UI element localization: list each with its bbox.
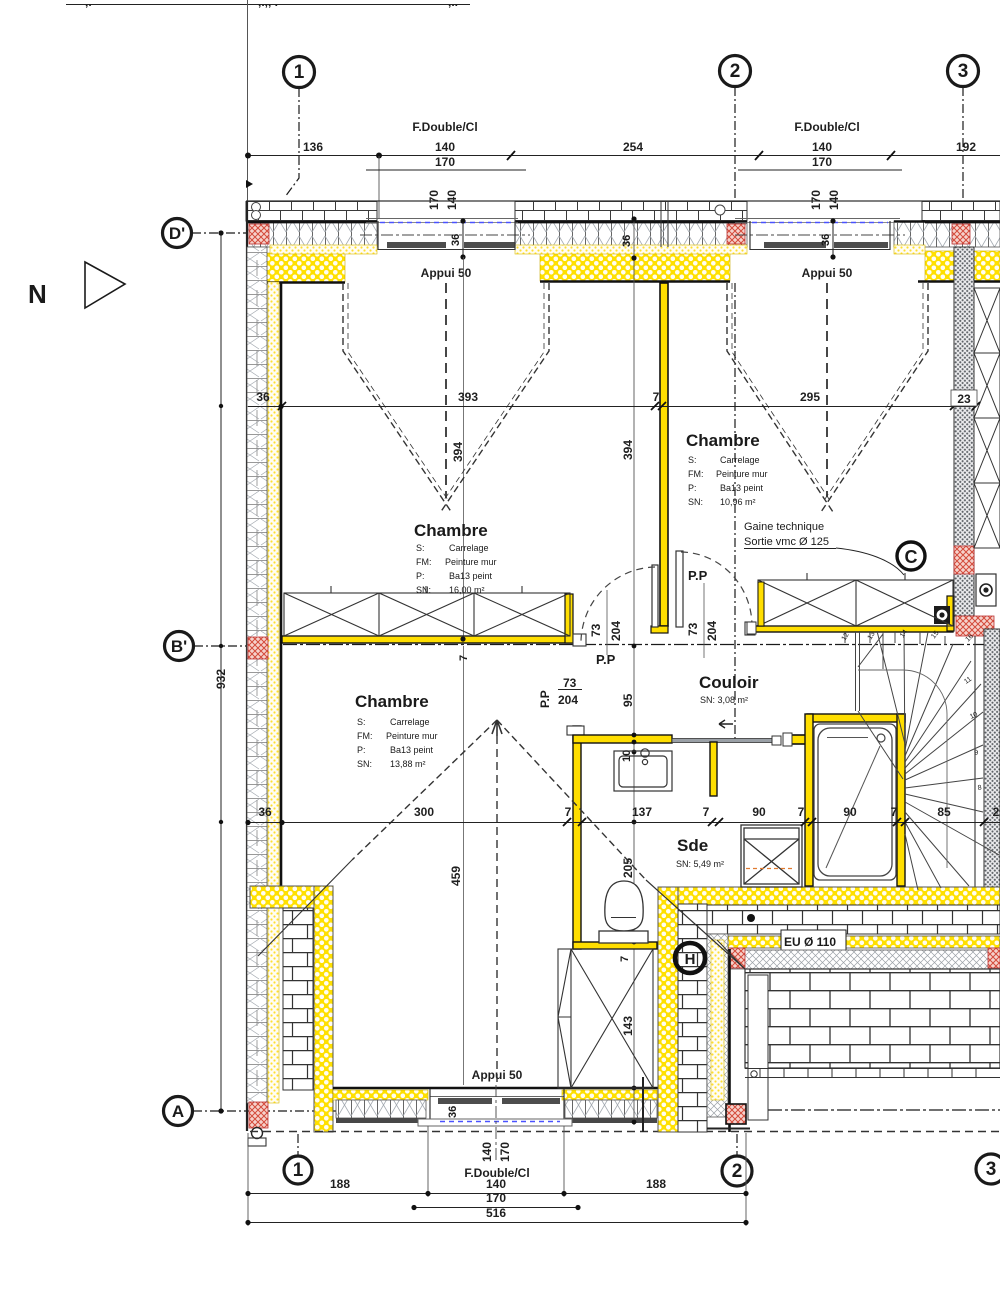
svg-text:Carrelage: Carrelage [390, 717, 430, 727]
svg-text:FM:: FM: [357, 731, 373, 741]
svg-text:170: 170 [435, 155, 455, 169]
svg-text:7: 7 [653, 390, 660, 404]
svg-text:394: 394 [621, 440, 635, 460]
svg-text:7: 7 [703, 805, 710, 819]
svg-text:,.,, .: ,.,, . [258, 0, 278, 9]
svg-text:140: 140 [445, 190, 459, 210]
svg-text:140: 140 [435, 140, 455, 154]
svg-text:204: 204 [558, 693, 578, 707]
svg-text:P.P: P.P [688, 568, 708, 583]
svg-text:170: 170 [427, 190, 441, 210]
svg-text:85: 85 [937, 805, 951, 819]
svg-text:73: 73 [563, 676, 577, 690]
svg-text:7: 7 [565, 805, 572, 819]
svg-text:N: N [28, 279, 47, 309]
svg-text:16,00 m²: 16,00 m² [449, 585, 485, 595]
svg-text:S:: S: [416, 543, 425, 553]
svg-text:F.Double/Cl: F.Double/Cl [794, 120, 859, 134]
svg-text:Couloir: Couloir [699, 673, 759, 692]
svg-text:Chambre: Chambre [355, 692, 429, 711]
svg-text:10,96 m²: 10,96 m² [720, 497, 756, 507]
svg-text:Carrelage: Carrelage [449, 543, 489, 553]
svg-text:188: 188 [646, 1177, 666, 1191]
svg-text:7: 7 [891, 805, 898, 819]
svg-text:P:: P: [416, 571, 425, 581]
svg-text:SN: 3,08 m²: SN: 3,08 m² [700, 695, 748, 705]
svg-text:P.P: P.P [538, 690, 552, 708]
svg-text:143: 143 [621, 1016, 635, 1036]
svg-text:3: 3 [986, 1159, 997, 1180]
svg-text:Ba13 peint: Ba13 peint [390, 745, 434, 755]
svg-text:2: 2 [993, 805, 1000, 819]
svg-text:140: 140 [812, 140, 832, 154]
svg-text:204: 204 [609, 621, 623, 641]
svg-text:Carrelage: Carrelage [720, 455, 760, 465]
svg-text:90: 90 [752, 805, 766, 819]
svg-text:170: 170 [809, 190, 823, 210]
svg-text:FM:: FM: [688, 469, 704, 479]
svg-text:13,88 m²: 13,88 m² [390, 759, 426, 769]
svg-text:36: 36 [621, 235, 633, 247]
svg-text:136: 136 [303, 140, 323, 154]
svg-text:7: 7 [798, 805, 805, 819]
svg-text:7: 7 [619, 956, 631, 962]
svg-text:A: A [172, 1102, 184, 1121]
svg-text:H: H [685, 951, 696, 968]
svg-text:1: 1 [293, 1160, 304, 1181]
svg-text:95: 95 [621, 693, 635, 707]
svg-text:2: 2 [730, 61, 741, 82]
svg-text:S:: S: [357, 717, 366, 727]
svg-text:295: 295 [800, 390, 820, 404]
svg-text:Peinture mur: Peinture mur [386, 731, 438, 741]
svg-text:393: 393 [458, 390, 478, 404]
svg-text:EU Ø 110: EU Ø 110 [784, 935, 836, 949]
svg-text:170: 170 [486, 1191, 506, 1205]
svg-text:394: 394 [451, 442, 465, 462]
svg-text:D': D' [169, 224, 185, 243]
svg-text:B': B' [171, 637, 187, 656]
svg-text:Sortie vmc Ø 125: Sortie vmc Ø 125 [744, 536, 829, 548]
svg-text:140: 140 [480, 1142, 494, 1162]
svg-text:,..: ,.. [448, 0, 458, 9]
svg-text:SN:: SN: [357, 759, 372, 769]
svg-text:188: 188 [330, 1177, 350, 1191]
svg-text:36: 36 [820, 234, 832, 246]
svg-text:36: 36 [258, 805, 272, 819]
svg-text:36: 36 [447, 1106, 459, 1118]
svg-text:SN: 5,49 m²: SN: 5,49 m² [676, 859, 724, 869]
svg-text:36: 36 [256, 390, 270, 404]
svg-text:Appui 50: Appui 50 [421, 266, 472, 280]
svg-text:Chambre: Chambre [414, 521, 488, 540]
svg-text:192: 192 [956, 140, 976, 154]
svg-text:SN:: SN: [688, 497, 703, 507]
svg-text:3: 3 [958, 61, 969, 82]
svg-text:Gaine technique: Gaine technique [744, 521, 824, 533]
svg-text:170: 170 [812, 155, 832, 169]
svg-text:Peinture mur: Peinture mur [445, 557, 497, 567]
svg-text:300: 300 [414, 805, 434, 819]
svg-text:F.Double/Cl: F.Double/Cl [464, 1166, 529, 1180]
svg-text:140: 140 [827, 190, 841, 210]
svg-text:,.: ,. [85, 0, 92, 9]
svg-text:Ba13 peint: Ba13 peint [449, 571, 493, 581]
svg-text:36: 36 [450, 234, 462, 246]
svg-text:73: 73 [589, 623, 603, 637]
svg-text:Sde: Sde [677, 836, 708, 855]
svg-text:Ba13 peint: Ba13 peint [720, 483, 764, 493]
svg-text:P:: P: [688, 483, 697, 493]
svg-text:23: 23 [957, 392, 971, 406]
svg-text:516: 516 [486, 1206, 506, 1220]
svg-text:137: 137 [632, 805, 652, 819]
svg-text:73: 73 [686, 622, 700, 636]
svg-text:7: 7 [458, 655, 470, 661]
svg-text:F.Double/Cl: F.Double/Cl [412, 120, 477, 134]
svg-text:932: 932 [214, 669, 228, 689]
svg-text:1: 1 [294, 62, 305, 83]
svg-text:Peinture mur: Peinture mur [716, 469, 768, 479]
svg-text:Appui 50: Appui 50 [802, 266, 853, 280]
svg-text:P:: P: [357, 745, 366, 755]
svg-text:Chambre: Chambre [686, 431, 760, 450]
svg-text:254: 254 [623, 140, 643, 154]
svg-text:204: 204 [705, 621, 719, 641]
svg-text:2: 2 [732, 1161, 743, 1182]
svg-text:S:: S: [688, 455, 697, 465]
svg-text:90: 90 [843, 805, 857, 819]
svg-text:FM:: FM: [416, 557, 432, 567]
svg-text:170: 170 [498, 1142, 512, 1162]
svg-text:SN:: SN: [416, 585, 431, 595]
svg-text:459: 459 [449, 866, 463, 886]
svg-text:C: C [905, 547, 918, 567]
svg-text:P.P: P.P [596, 652, 616, 667]
